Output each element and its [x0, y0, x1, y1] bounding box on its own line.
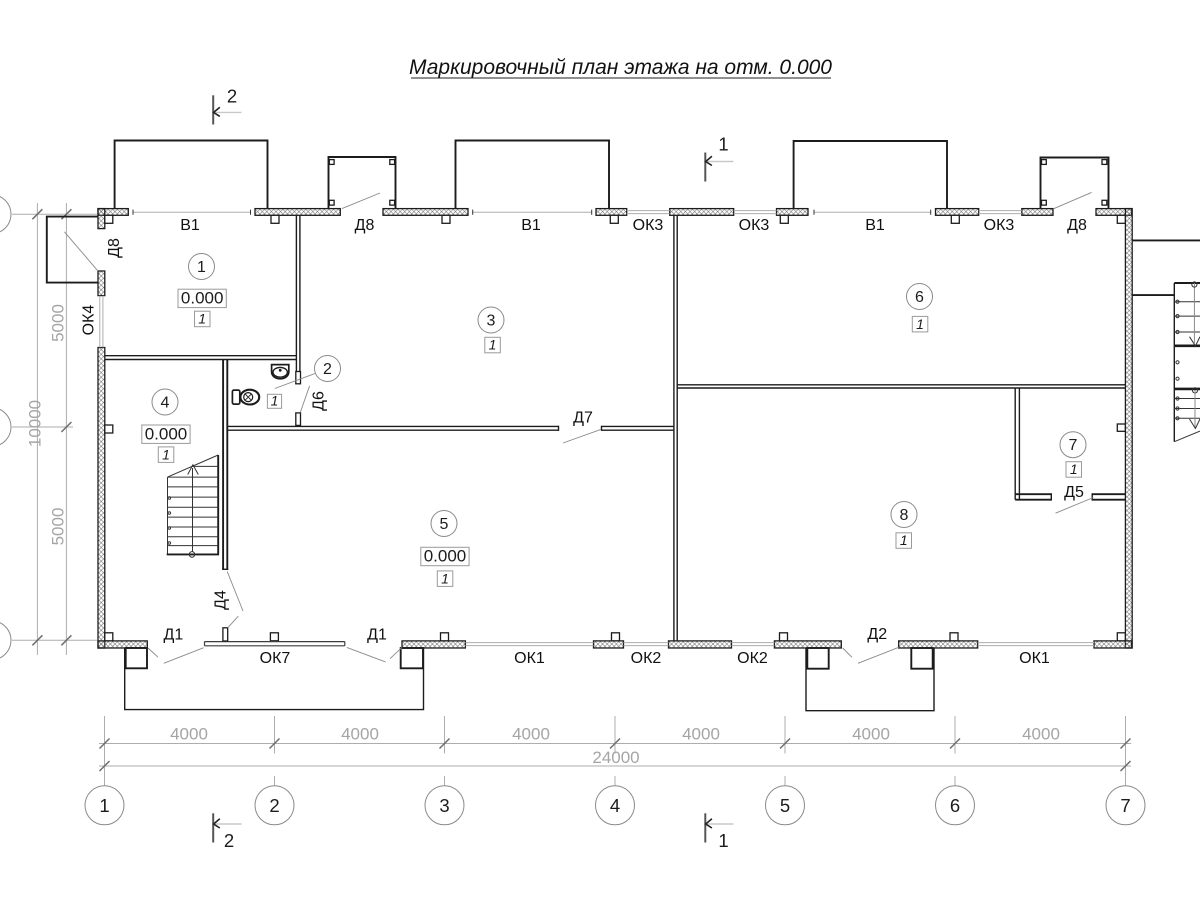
svg-text:ОК3: ОК3: [739, 217, 770, 234]
svg-text:6: 6: [915, 289, 924, 306]
svg-text:1: 1: [1070, 461, 1078, 477]
svg-text:Д2: Д2: [867, 626, 887, 643]
svg-text:Д6: Д6: [311, 391, 328, 411]
svg-text:ОК3: ОК3: [633, 217, 664, 234]
svg-text:7: 7: [1069, 437, 1078, 454]
svg-text:ОК7: ОК7: [260, 650, 291, 667]
svg-text:4: 4: [161, 395, 170, 412]
svg-text:0.000: 0.000: [145, 424, 188, 443]
svg-text:Д5: Д5: [1064, 484, 1084, 501]
svg-text:10000: 10000: [26, 400, 45, 447]
svg-text:5: 5: [440, 516, 449, 533]
svg-text:ОК2: ОК2: [631, 650, 662, 667]
svg-text:1: 1: [718, 134, 728, 155]
svg-text:1: 1: [718, 830, 728, 851]
svg-text:5000: 5000: [49, 508, 68, 546]
svg-text:ОК1: ОК1: [1019, 650, 1050, 667]
svg-text:В1: В1: [521, 217, 541, 234]
svg-text:1: 1: [916, 316, 924, 332]
svg-text:1: 1: [489, 337, 497, 353]
svg-text:2: 2: [224, 830, 234, 851]
svg-text:Д8: Д8: [106, 238, 123, 258]
svg-text:2: 2: [323, 361, 332, 378]
svg-text:ОК4: ОК4: [81, 305, 98, 336]
svg-text:4000: 4000: [341, 725, 379, 744]
svg-text:Маркировочный план этажа на от: Маркировочный план этажа на отм. 0.000: [409, 56, 832, 79]
svg-text:5000: 5000: [49, 304, 68, 342]
svg-text:1: 1: [198, 311, 206, 327]
svg-text:3: 3: [439, 795, 449, 816]
svg-text:В1: В1: [865, 217, 885, 234]
svg-text:1: 1: [900, 532, 908, 548]
svg-text:1: 1: [162, 446, 170, 462]
svg-text:2: 2: [227, 86, 237, 107]
svg-text:Д8: Д8: [355, 217, 375, 234]
svg-text:1: 1: [99, 795, 109, 816]
svg-text:5: 5: [780, 795, 790, 816]
svg-text:4000: 4000: [1022, 725, 1060, 744]
svg-text:1: 1: [197, 259, 206, 276]
svg-text:Д4: Д4: [213, 590, 230, 610]
svg-text:ОК1: ОК1: [514, 650, 545, 667]
svg-text:7: 7: [1120, 795, 1130, 816]
svg-text:2: 2: [269, 795, 279, 816]
svg-text:Д7: Д7: [573, 410, 593, 427]
svg-text:8: 8: [900, 507, 909, 524]
svg-text:Д1: Д1: [164, 626, 184, 643]
svg-text:24000: 24000: [592, 748, 639, 767]
svg-text:1: 1: [441, 570, 449, 586]
svg-text:ОК2: ОК2: [737, 650, 768, 667]
svg-text:4: 4: [610, 795, 620, 816]
svg-text:6: 6: [950, 795, 960, 816]
svg-text:4000: 4000: [852, 725, 890, 744]
svg-text:4000: 4000: [170, 725, 208, 744]
svg-text:0.000: 0.000: [181, 289, 224, 308]
svg-text:0.000: 0.000: [424, 547, 467, 566]
svg-text:Д1: Д1: [367, 626, 387, 643]
svg-text:4000: 4000: [512, 725, 550, 744]
svg-text:Д8: Д8: [1067, 217, 1087, 234]
svg-text:ОК3: ОК3: [984, 217, 1015, 234]
svg-text:4000: 4000: [682, 725, 720, 744]
svg-text:3: 3: [487, 313, 496, 330]
svg-text:1: 1: [271, 393, 279, 409]
svg-text:В1: В1: [180, 217, 200, 234]
